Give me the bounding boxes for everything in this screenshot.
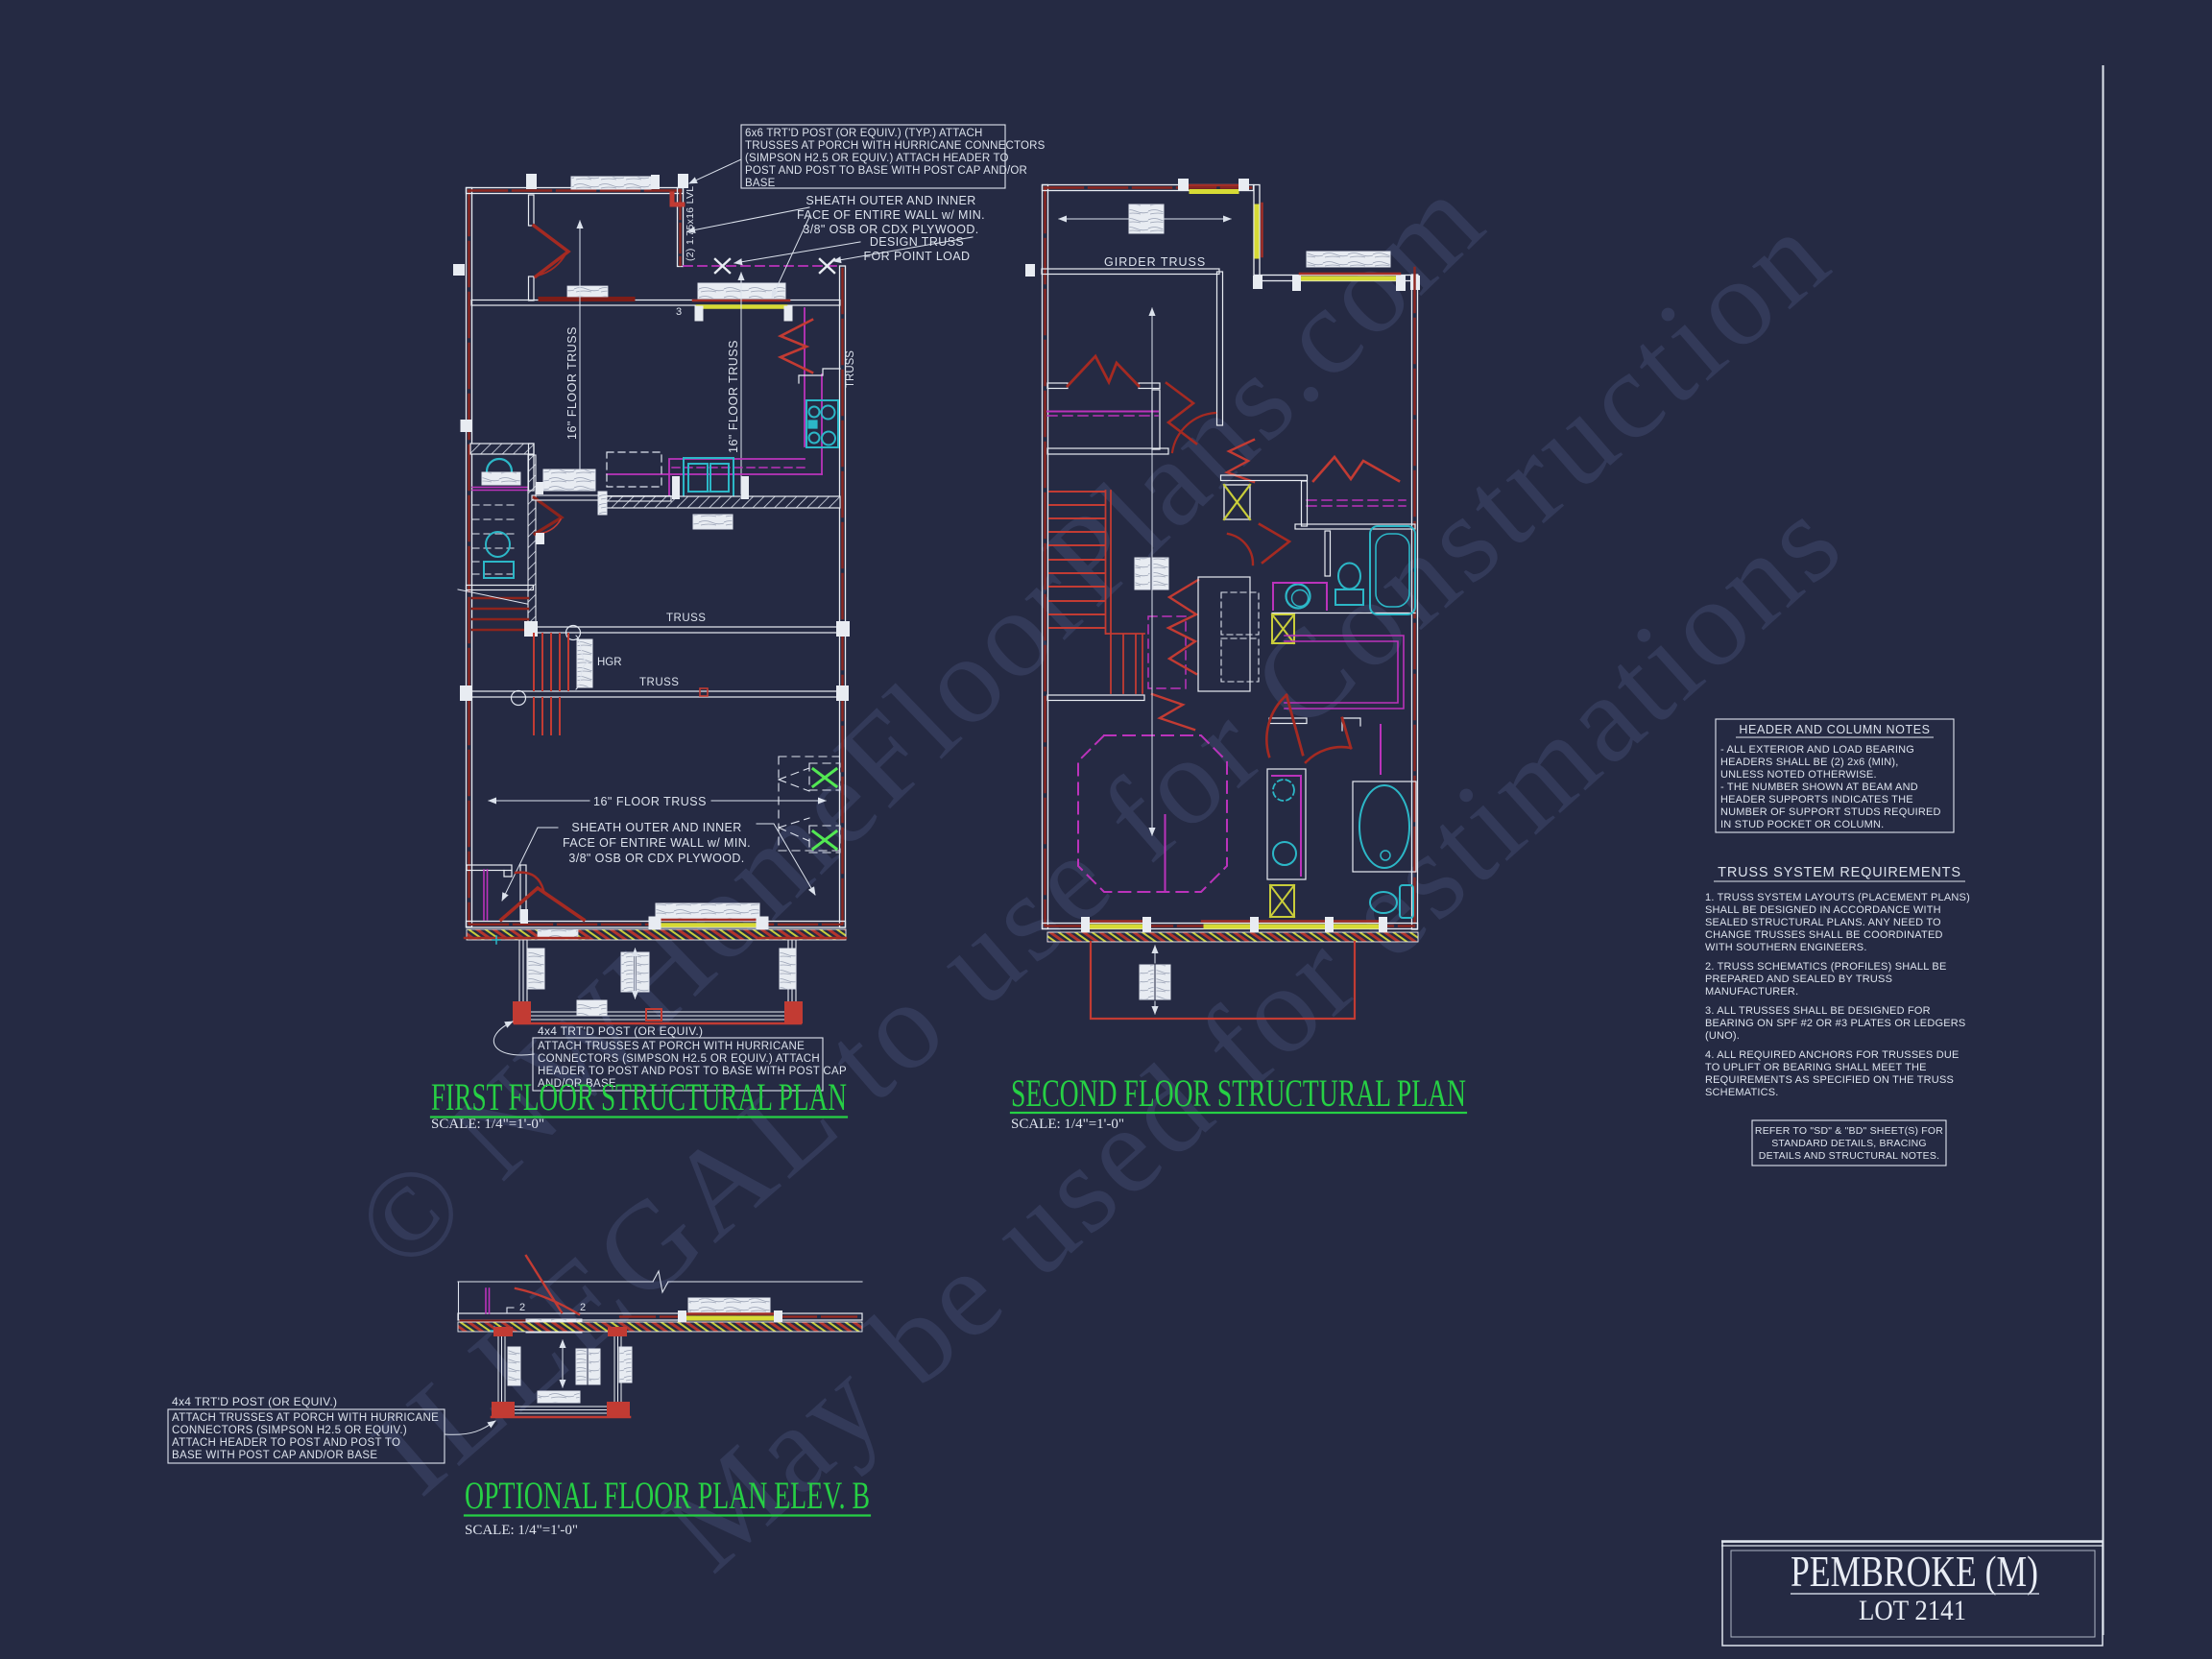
svg-text:(2) 1.75x16 LVL: (2) 1.75x16 LVL xyxy=(685,186,696,261)
svg-text:TRUSS: TRUSS xyxy=(639,677,679,688)
svg-text:SHEATH OUTER AND INNER: SHEATH OUTER AND INNER xyxy=(571,821,741,834)
svg-text:CHANGE TRUSSES SHALL BE COORDI: CHANGE TRUSSES SHALL BE COORDINATED xyxy=(1705,929,1943,941)
svg-text:HEADERS SHALL BE (2) 2x6 (MIN): HEADERS SHALL BE (2) 2x6 (MIN), xyxy=(1720,757,1899,768)
svg-text:16" FLOOR TRUSS: 16" FLOOR TRUSS xyxy=(727,340,740,453)
svg-text:SCHEMATICS.: SCHEMATICS. xyxy=(1705,1087,1779,1098)
svg-text:ATTACH TRUSSES AT PORCH WITH H: ATTACH TRUSSES AT PORCH WITH HURRICANE xyxy=(172,1412,439,1424)
svg-text:16" FLOOR TRUSS: 16" FLOOR TRUSS xyxy=(565,326,579,440)
svg-text:- ALL EXTERIOR AND LOAD BEARIN: - ALL EXTERIOR AND LOAD BEARING xyxy=(1720,744,1914,756)
svg-text:WITH SOUTHERN ENGINEERS.: WITH SOUTHERN ENGINEERS. xyxy=(1705,942,1867,953)
svg-text:(SIMPSON H2.5 OR EQUIV.) ATTAC: (SIMPSON H2.5 OR EQUIV.) ATTACH HEADER T… xyxy=(745,153,1009,164)
svg-text:REQUIREMENTS AS SPECIFIED ON T: REQUIREMENTS AS SPECIFIED ON THE TRUSS xyxy=(1705,1074,1954,1086)
svg-text:POST AND POST TO BASE WITH POS: POST AND POST TO BASE WITH POST CAP AND/… xyxy=(745,165,1027,177)
svg-text:STANDARD DETAILS, BRACING: STANDARD DETAILS, BRACING xyxy=(1771,1138,1927,1149)
svg-text:NUMBER OF SUPPORT STUDS REQUIR: NUMBER OF SUPPORT STUDS REQUIRED xyxy=(1720,806,1941,818)
svg-text:SCALE: 1/4"=1'-0": SCALE: 1/4"=1'-0" xyxy=(1011,1117,1124,1132)
svg-text:BASE WITH POST CAP AND/OR BASE: BASE WITH POST CAP AND/OR BASE xyxy=(172,1450,377,1461)
svg-text:SECOND FLOOR STRUCTURAL PLAN: SECOND FLOOR STRUCTURAL PLAN xyxy=(1011,1071,1466,1115)
svg-text:6x6 TRT'D POST (OR EQUIV.) (TY: 6x6 TRT'D POST (OR EQUIV.) (TYP.) ATTACH xyxy=(745,128,982,139)
svg-text:2. TRUSS SCHEMATICS (PROFILES): 2. TRUSS SCHEMATICS (PROFILES) SHALL BE xyxy=(1705,961,1947,973)
svg-text:1. TRUSS SYSTEM LAYOUTS (PLACE: 1. TRUSS SYSTEM LAYOUTS (PLACEMENT PLANS… xyxy=(1705,892,1970,903)
svg-text:PEMBROKE (M): PEMBROKE (M) xyxy=(1791,1547,2038,1596)
svg-text:CONNECTORS (SIMPSON H2.5 OR EQ: CONNECTORS (SIMPSON H2.5 OR EQUIV.) ATTA… xyxy=(538,1053,820,1065)
svg-text:TRUSS SYSTEM REQUIREMENTS: TRUSS SYSTEM REQUIREMENTS xyxy=(1718,865,1961,880)
svg-text:BEARING ON SPF #2 OR #3 PLATES: BEARING ON SPF #2 OR #3 PLATES OR LEDGER… xyxy=(1705,1018,1965,1029)
svg-text:CONNECTORS (SIMPSON H2.5 OR EQ: CONNECTORS (SIMPSON H2.5 OR EQUIV.) xyxy=(172,1425,407,1436)
svg-text:HGR: HGR xyxy=(597,657,622,668)
svg-text:SHEATH OUTER AND INNER: SHEATH OUTER AND INNER xyxy=(805,194,975,207)
svg-text:4x4 TRT'D POST (OR EQUIV.): 4x4 TRT'D POST (OR EQUIV.) xyxy=(172,1395,337,1408)
svg-text:REFER TO "SD" & "BD" SHEET(S): REFER TO "SD" & "BD" SHEET(S) FOR xyxy=(1755,1125,1943,1137)
svg-text:FIRST FLOOR STRUCTURAL PLAN: FIRST FLOOR STRUCTURAL PLAN xyxy=(431,1075,847,1118)
svg-text:ATTACH TRUSSES AT PORCH WITH H: ATTACH TRUSSES AT PORCH WITH HURRICANE xyxy=(538,1041,805,1052)
svg-text:IN STUD POCKET OR COLUMN.: IN STUD POCKET OR COLUMN. xyxy=(1720,819,1884,830)
svg-text:SEALED STRUCTURAL PLANS. ANY N: SEALED STRUCTURAL PLANS. ANY NEED TO xyxy=(1705,917,1941,928)
svg-text:MANUFACTURER.: MANUFACTURER. xyxy=(1705,986,1798,998)
svg-text:3/8" OSB OR CDX PLYWOOD.: 3/8" OSB OR CDX PLYWOOD. xyxy=(568,852,744,865)
svg-text:OPTIONAL FLOOR PLAN ELEV. B: OPTIONAL FLOOR PLAN ELEV. B xyxy=(465,1474,870,1517)
svg-text:ATTACH HEADER TO POST AND POST: ATTACH HEADER TO POST AND POST TO xyxy=(172,1437,400,1449)
svg-text:2: 2 xyxy=(519,1302,525,1313)
svg-text:PREPARED AND SEALED BY TRUSS: PREPARED AND SEALED BY TRUSS xyxy=(1705,974,1892,985)
svg-text:FACE OF ENTIRE WALL w/ MIN.: FACE OF ENTIRE WALL w/ MIN. xyxy=(563,836,751,850)
svg-text:UNLESS NOTED OTHERWISE.: UNLESS NOTED OTHERWISE. xyxy=(1720,769,1877,781)
svg-text:BASE: BASE xyxy=(745,178,776,189)
svg-text:TRUSS: TRUSS xyxy=(845,350,856,388)
svg-text:LOT 2141: LOT 2141 xyxy=(1859,1595,1966,1626)
svg-text:3/8" OSB OR CDX PLYWOOD.: 3/8" OSB OR CDX PLYWOOD. xyxy=(803,223,978,236)
svg-text:DETAILS AND STRUCTURAL NOTES.: DETAILS AND STRUCTURAL NOTES. xyxy=(1759,1150,1939,1162)
svg-text:3. ALL TRUSSES SHALL BE DESIGN: 3. ALL TRUSSES SHALL BE DESIGNED FOR xyxy=(1705,1005,1931,1017)
svg-text:SHALL BE DESIGNED IN ACCORDANC: SHALL BE DESIGNED IN ACCORDANCE WITH xyxy=(1705,904,1941,916)
svg-text:HEADER AND COLUMN NOTES: HEADER AND COLUMN NOTES xyxy=(1739,723,1930,736)
svg-text:SCALE: 1/4"=1'-0": SCALE: 1/4"=1'-0" xyxy=(431,1117,544,1132)
svg-text:2: 2 xyxy=(580,1302,586,1313)
svg-text:SCALE: 1/4"=1'-0": SCALE: 1/4"=1'-0" xyxy=(465,1523,578,1538)
svg-text:FACE OF ENTIRE WALL w/ MIN.: FACE OF ENTIRE WALL w/ MIN. xyxy=(797,208,985,222)
svg-text:TRUSSES AT PORCH WITH HURRICAN: TRUSSES AT PORCH WITH HURRICANE CONNECTO… xyxy=(745,140,1046,152)
svg-text:- THE NUMBER SHOWN AT BEAM AND: - THE NUMBER SHOWN AT BEAM AND xyxy=(1720,781,1918,793)
svg-text:16" FLOOR TRUSS: 16" FLOOR TRUSS xyxy=(593,795,707,808)
svg-text:4x4 TRT'D POST (OR EQUIV.): 4x4 TRT'D POST (OR EQUIV.) xyxy=(538,1024,703,1038)
svg-text:HEADER SUPPORTS INDICATES THE: HEADER SUPPORTS INDICATES THE xyxy=(1720,794,1913,805)
svg-text:TRUSS: TRUSS xyxy=(666,613,706,624)
svg-text:(UNO).: (UNO). xyxy=(1705,1030,1740,1042)
svg-text:FOR POINT LOAD: FOR POINT LOAD xyxy=(864,250,971,263)
svg-text:3: 3 xyxy=(676,306,682,318)
svg-text:TO UPLIFT OR BEARING SHALL MEE: TO UPLIFT OR BEARING SHALL MEET THE xyxy=(1705,1062,1927,1073)
svg-text:GIRDER TRUSS: GIRDER TRUSS xyxy=(1104,255,1206,269)
svg-text:4. ALL REQUIRED ANCHORS FOR TR: 4. ALL REQUIRED ANCHORS FOR TRUSSES DUE xyxy=(1705,1049,1960,1061)
